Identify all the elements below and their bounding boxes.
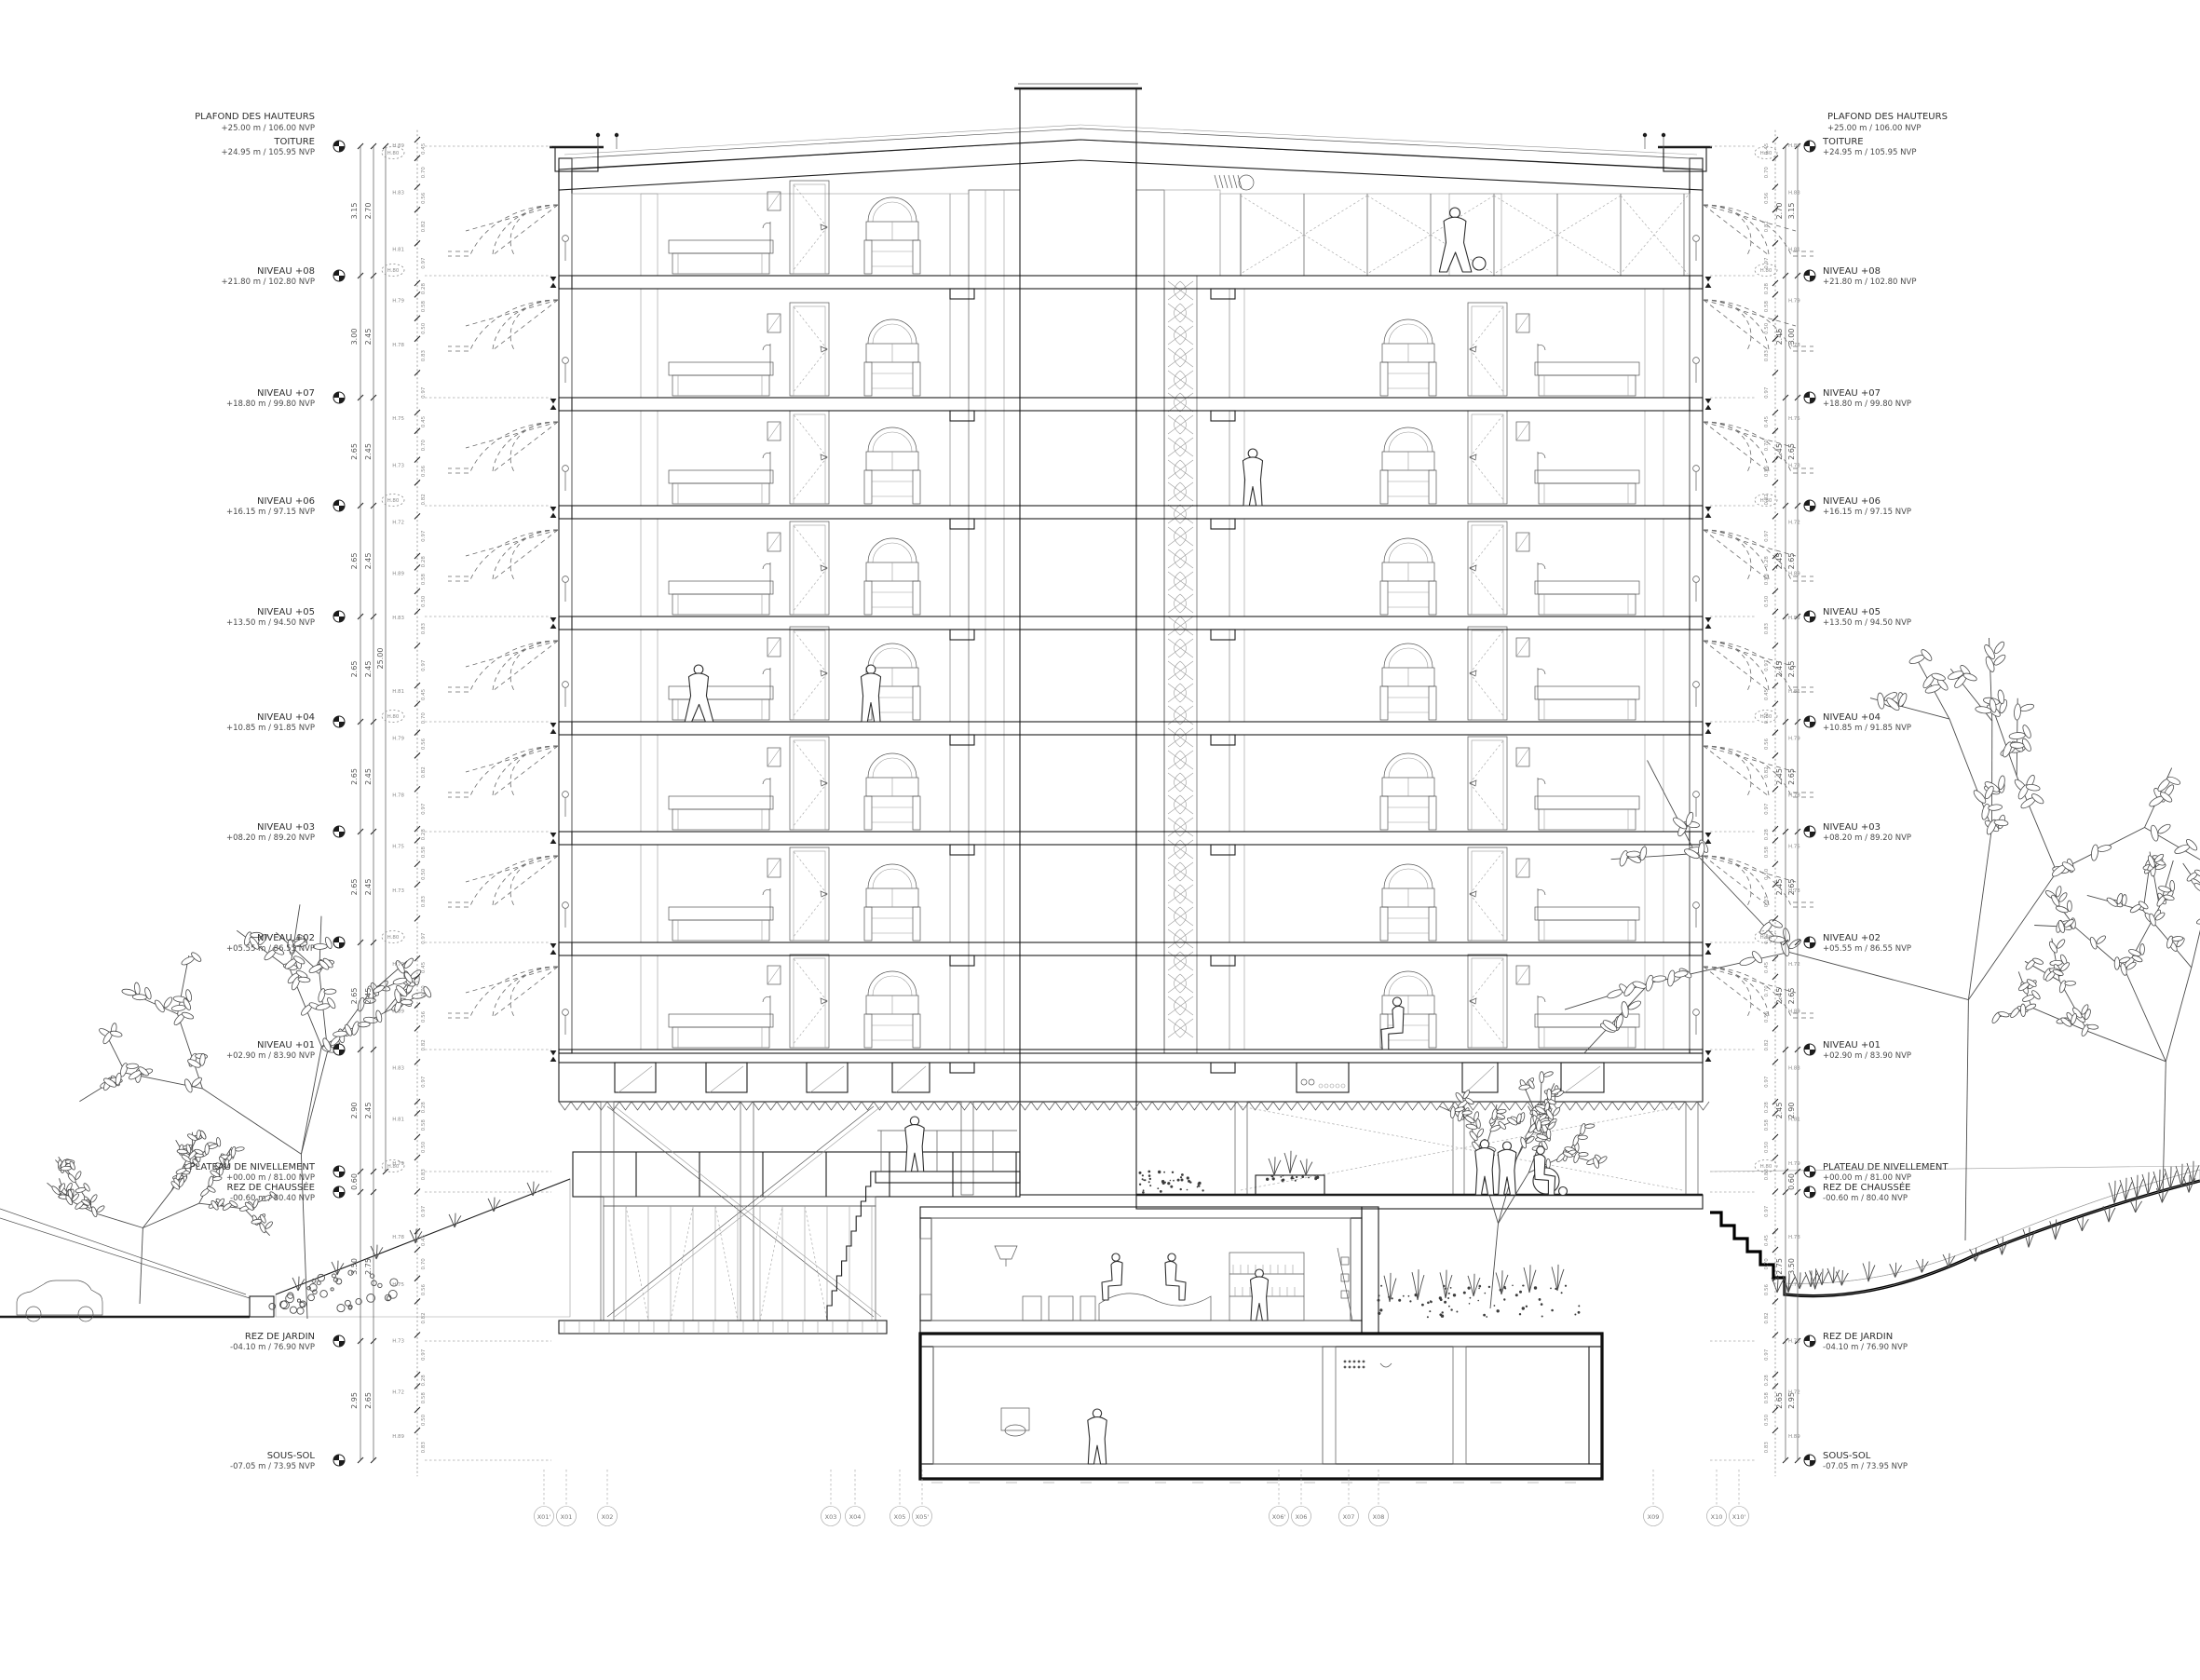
annotation-text: 0.82 [1764,221,1770,232]
annotation-text: TOITURE [273,137,315,147]
annotation-text: 0.28 [1764,1102,1770,1114]
annotation-text: +21.80 m / 102.80 NVP [222,278,315,287]
annotation-text: X06' [1272,1513,1286,1521]
annotation-text: H.83 [392,616,404,621]
annotation-text: 2.70 [1775,203,1784,220]
annotation-text: 0.82 [421,766,427,778]
annotation-text: 0.97 [1764,530,1770,542]
annotation-text: H.75 [1788,844,1800,849]
annotation-text: 0.58 [421,573,427,585]
annotation-text: NIVEAU +08 [257,266,315,277]
annotation-text: H.79 [392,737,404,742]
annotation-text: 2.65 [364,1392,373,1409]
annotation-text: 0.82 [1764,1039,1770,1050]
annotation-text: H.80 [387,498,400,504]
annotation-text: 3.15 [350,203,359,220]
person-figure [910,1117,918,1125]
annotation-text: 2.45 [1775,768,1784,785]
annotation-text: 0.83 [421,349,427,361]
annotation-text: H.75 [392,416,404,422]
annotation-text: NIVEAU +01 [1823,1040,1881,1050]
annotation-text: NIVEAU +03 [1823,822,1881,833]
person-figure [1112,1253,1120,1261]
annotation-text: H.81 [392,689,404,695]
annotation-text: 0.83 [1764,896,1770,908]
annotation-text: H.75 [1788,416,1800,422]
annotation-text: 0.70 [1764,985,1770,997]
annotation-text: 2.45 [1775,988,1784,1005]
annotation-text: 0.82 [421,1312,427,1323]
annotation-text: 0.82 [421,494,427,505]
annotation-text: 0.58 [421,300,427,312]
basement [920,1334,1602,1483]
annotation-text: 0.50 [421,1141,427,1153]
annotation-text: -07.05 m / 73.95 NVP [1823,1462,1908,1471]
annotation-text: 2.65 [1775,1392,1784,1409]
annotation-text: 3.50 [350,1258,359,1275]
annotation-text: H.72 [392,962,404,968]
annotation-text: PLAFOND DES HAUTEURS [1827,112,1948,122]
annotation-text: +02.90 m / 83.90 NVP [226,1051,315,1061]
annotation-text: H.72 [392,1389,404,1395]
annotation-text: H.73 [1788,464,1800,469]
person-figure [866,665,876,674]
annotation-text: 0.97 [421,659,427,671]
annotation-text: 0.45 [1764,1234,1770,1246]
annotation-text: 0.50 [1764,1141,1770,1153]
annotation-text: REZ DE JARDIN [1823,1332,1893,1342]
annotation-text: SOUS-SOL [1823,1451,1871,1461]
annotation-text: H.80 [387,935,400,941]
annotation-text: H.73 [392,1338,404,1344]
annotation-text: NIVEAU +06 [257,496,315,507]
annotation-text: 0.70 [1764,1258,1770,1270]
annotation-text: 0.58 [1764,1392,1770,1404]
annotation-text: REZ DE CHAUSSÉE [1823,1181,1911,1193]
annotation-text: 0.45 [421,142,427,155]
annotation-text: 0.28 [1764,283,1770,295]
annotation-text: NIVEAU +03 [257,822,315,833]
annotation-text: H.73 [1788,1338,1800,1344]
annotation-text: +10.85 m / 91.85 NVP [1823,724,1911,733]
annotation-text: 2.65 [350,988,359,1005]
annotation-text: 0.82 [1764,1312,1770,1323]
annotation-text: X03 [825,1513,837,1521]
annotation-text: NIVEAU +02 [257,933,315,943]
tree [1439,1071,1608,1308]
bedroom-left [572,181,969,276]
annotation-text: 2.65 [1787,661,1796,678]
annotation-text: 0.56 [1764,192,1770,204]
annotation-text: 0.70 [421,985,427,997]
annotation-text: 2.45 [364,661,373,678]
bedroom-right [1229,411,1690,506]
annotation-text: 0.83 [421,1169,427,1181]
annotation-text: X10 [1711,1513,1723,1521]
entrance-landing [827,1131,1020,1321]
annotation-text: 2.45 [1775,1103,1784,1119]
annotation-text: PLATEAU DE NIVELLEMENT [1823,1162,1949,1172]
annotation-text: 0.97 [421,530,427,542]
annotation-text: 0.56 [421,738,427,750]
annotation-text: X01' [537,1513,551,1521]
person-figure [1168,1253,1175,1261]
annotation-text: 2.75 [364,1258,373,1275]
annotation-text: 0.70 [1764,167,1770,179]
annotation-text: 2.65 [350,661,359,678]
annotation-text: 0.28 [1764,1375,1770,1387]
annotation-text: H.79 [392,298,404,304]
annotation-text: 0.97 [1764,1205,1770,1217]
annotation-text: 2.65 [1787,553,1796,570]
annotation-text: H.89 [1788,1009,1800,1015]
garden-level-lounge [920,1207,1362,1334]
annotation-text: H.73 [1788,888,1800,894]
person-figure [1248,449,1257,458]
annotation-text: 0.58 [421,1119,427,1131]
annotation-text: +18.80 m / 99.80 NVP [1823,400,1911,409]
annotation-text: H.78 [392,1235,404,1240]
annotation-text: 2.45 [364,768,373,785]
annotation-text: 2.45 [364,988,373,1005]
annotation-text: 0.45 [1764,688,1770,700]
annotation-text: 2.95 [350,1392,359,1409]
bedroom-left [572,845,969,942]
annotation-text: H.78 [1788,793,1800,798]
annotation-text: PLAFOND DES HAUTEURS [195,112,315,122]
annotation-text: +05.55 m / 86.55 NVP [226,944,315,954]
annotation-text: 0.58 [1764,300,1770,312]
annotation-text: H.89 [392,1434,404,1440]
tree [1990,852,2200,1198]
annotation-text: NIVEAU +05 [257,607,315,617]
annotation-text: +00.00 m / 81.00 NVP [226,1173,315,1183]
architectural-section-drawing: PLAFOND DES HAUTEURS+25.00 m / 106.00 NV… [0,0,2200,1680]
tree [79,904,432,1319]
annotation-text: 0.28 [1764,556,1770,568]
annotation-text: -04.10 m / 76.90 NVP [1823,1343,1908,1352]
annotation-text: 0.83 [421,1442,427,1454]
annotation-text: NIVEAU +04 [1823,712,1881,723]
annotation-text: H.72 [1788,962,1800,968]
annotation-text: H.79 [392,1161,404,1167]
annotation-text: 0.56 [421,465,427,477]
annotation-text: X08 [1373,1513,1385,1521]
annotation-text: 0.56 [1764,738,1770,750]
annotation-text: X07 [1343,1513,1355,1521]
annotation-text: 2.70 [364,203,373,220]
annotation-text: 0.97 [421,1348,427,1361]
annotation-text: +25.00 m / 106.00 NVP [1827,124,1921,133]
annotation-text: 2.65 [350,768,359,785]
annotation-text: 0.28 [421,556,427,568]
annotation-text: 0.28 [421,1102,427,1114]
annotation-text: H.73 [392,888,404,894]
annotation-text: H.89 [1788,143,1800,149]
annotation-text: NIVEAU +06 [1823,496,1881,507]
annotation-text: 0.45 [1764,961,1770,973]
annotation-text: -00.60 m / 80.40 NVP [230,1194,315,1203]
terrace [1136,1102,1703,1209]
annotation-text: 0.58 [1764,573,1770,585]
annotation-text: 2.65 [1787,768,1796,785]
annotation-text: NIVEAU +07 [1823,388,1881,399]
annotation-text: X02 [602,1513,614,1521]
annotation-text: 0.97 [1764,932,1770,944]
annotation-text: 0.56 [1764,1283,1770,1295]
annotation-text: H.81 [1788,689,1800,695]
bedroom-right [1229,735,1690,832]
annotation-text: 0.97 [421,932,427,944]
annotation-text: X05 [894,1513,906,1521]
bedroom-left [572,519,969,616]
annotation-text: 0.83 [1764,349,1770,361]
annotation-text: H.80 [387,268,400,274]
annotation-text: H.81 [1788,247,1800,252]
person-figure [1450,208,1460,218]
annotation-text: 0.50 [421,868,427,880]
annotation-text: +24.95 m / 105.95 NVP [1823,148,1916,157]
annotation-text: NIVEAU +07 [257,388,315,399]
annotation-text: 2.45 [1775,879,1784,896]
person-figure [1502,1142,1511,1150]
annotation-text: H.78 [1788,343,1800,348]
scene-content: PLAFOND DES HAUTEURS+25.00 m / 106.00 NV… [0,84,2200,1526]
bedroom-left [572,289,969,398]
annotation-text: 0.50 [1764,322,1770,334]
annotation-text: 2.45 [364,879,373,896]
annotation-text: 0.70 [421,712,427,725]
annotation-text: 0.28 [421,829,427,841]
annotation-text: 0.45 [421,688,427,700]
bedroom-left [572,955,969,1050]
annotation-text: 3.50 [1787,1258,1796,1275]
annotation-text: NIVEAU +04 [257,712,315,723]
shrub [269,1293,306,1314]
annotation-text: 0.45 [421,1234,427,1246]
annotation-text: +21.80 m / 102.80 NVP [1823,278,1916,287]
annotation-text: 0.60 [350,1173,359,1190]
tree [48,1130,278,1304]
annotation-text: 2.65 [350,443,359,460]
annotation-text: X01 [561,1513,573,1521]
annotation-text: 0.97 [1764,1076,1770,1088]
soil-speckle [1378,1285,1581,1319]
annotation-text: H.79 [1788,737,1800,742]
annotation-text: NIVEAU +05 [1823,607,1881,617]
annotation-text: NIVEAU +01 [257,1040,315,1050]
annotation-text: H.79 [1788,298,1800,304]
annotation-text: +10.85 m / 91.85 NVP [226,724,315,733]
annotation-text: TOITURE [1822,137,1864,147]
annotation-text: SOUS-SOL [267,1451,316,1461]
annotation-text: 0.70 [1764,440,1770,452]
annotation-text: 0.56 [1764,465,1770,477]
annotation-text: 2.65 [350,879,359,896]
annotation-text: 0.56 [421,1010,427,1023]
annotation-text: 2.45 [1775,443,1784,460]
bedroom-left [572,735,969,832]
annotation-text: -07.05 m / 73.95 NVP [230,1462,315,1471]
annotation-text: 0.58 [1764,847,1770,859]
building-section [448,84,1813,1483]
annotation-text: 0.70 [421,1258,427,1270]
annotation-text: 0.50 [1764,1414,1770,1426]
annotation-text: 0.70 [421,440,427,452]
annotation-text: X05' [916,1513,930,1521]
annotation-text: 2.75 [1775,1258,1784,1275]
annotation-text: 0.45 [421,961,427,973]
annotation-text: H.79 [1788,1161,1800,1167]
annotation-text: 0.97 [1764,659,1770,671]
annotation-text: H.72 [1788,520,1800,525]
annotation-text: X06 [1296,1513,1308,1521]
annotation-text: H.83 [1788,616,1800,621]
person-figure [694,665,703,674]
annotation-text: 0.56 [421,1283,427,1295]
annotation-text: 0.97 [1764,257,1770,269]
annotation-text: +02.90 m / 83.90 NVP [1823,1051,1911,1061]
annotation-text: 0.50 [421,322,427,334]
dimension-annotations: PLAFOND DES HAUTEURS+25.00 m / 106.00 NV… [190,112,1949,1526]
annotation-text: +16.15 m / 97.15 NVP [226,508,315,517]
annotation-text: H.89 [392,143,404,149]
annotation-text: H.89 [1788,571,1800,576]
annotation-text: H.83 [392,191,404,196]
annotation-text: 0.97 [421,803,427,815]
annotation-text: 0.97 [421,257,427,269]
annotation-text: H.78 [392,793,404,798]
annotation-text: 2.45 [364,443,373,460]
annotation-text: H.78 [392,343,404,348]
annotation-text: +08.20 m / 89.20 NVP [226,833,315,843]
annotation-text: 2.65 [350,553,359,570]
annotation-text: 0.58 [421,847,427,859]
annotation-text: H.81 [392,247,404,252]
annotation-text: 0.97 [421,1205,427,1217]
bedroom-left [572,411,969,506]
annotation-text: 0.28 [1764,829,1770,841]
technical-floor-band [559,1053,1709,1110]
sunken-garden [1362,1207,1580,1334]
annotation-text: 25.00 [376,648,385,670]
annotation-text: +05.55 m / 86.55 NVP [1823,944,1911,954]
annotation-text: 0.50 [421,1414,427,1426]
annotation-text: 0.70 [1764,712,1770,725]
annotation-text: REZ DE CHAUSSÉE [227,1181,316,1193]
annotation-text: 2.65 [1787,988,1796,1005]
annotation-text: 0.97 [1764,803,1770,815]
annotation-text: H.75 [392,1282,404,1288]
annotation-text: H.81 [392,1117,404,1122]
annotation-text: -00.60 m / 80.40 NVP [1823,1194,1908,1203]
annotation-text: H.75 [1788,1282,1800,1288]
annotation-text: NIVEAU +02 [1823,933,1881,943]
annotation-text: 0.50 [421,595,427,607]
annotation-text: REZ DE JARDIN [245,1332,315,1342]
annotation-text: 0.82 [421,1039,427,1050]
annotation-text: NIVEAU +08 [1823,266,1881,277]
annotation-text: X09 [1648,1513,1660,1521]
annotation-text: 0.58 [1764,1119,1770,1131]
annotation-text: H.83 [392,1065,404,1071]
annotation-text: 0.83 [1764,623,1770,635]
annotation-text: H.81 [1788,1117,1800,1122]
annotation-text: +16.15 m / 97.15 NVP [1823,508,1911,517]
annotation-text: H.72 [1788,1389,1800,1395]
annotation-text: +18.80 m / 99.80 NVP [226,400,315,409]
annotation-text: 2.45 [1775,329,1784,345]
annotation-text: +13.50 m / 94.50 NVP [1823,618,1911,628]
annotation-text: 2.45 [1775,661,1784,678]
annotation-text: +25.00 m / 106.00 NVP [222,124,315,133]
annotation-text: 2.90 [350,1103,359,1119]
person-figure [1480,1140,1488,1148]
annotation-text: 0.58 [421,1392,427,1404]
annotation-text: H.83 [1788,191,1800,196]
annotation-text: 0.82 [1764,494,1770,505]
annotation-text: H.89 [392,571,404,576]
annotation-text: 0.45 [1764,142,1770,155]
annotation-text: 0.97 [1764,1348,1770,1361]
annotation-text: H.72 [392,520,404,525]
annotation-text: H.89 [1788,1434,1800,1440]
annotation-text: 0.83 [421,896,427,908]
annotation-text: 0.97 [421,386,427,399]
annotation-text: 0.82 [1764,766,1770,778]
annotation-text: H.89 [392,1009,404,1015]
annotation-text: 0.97 [421,1076,427,1088]
annotation-text: +00.00 m / 81.00 NVP [1823,1173,1911,1183]
drawing-sheet: PLAFOND DES HAUTEURS+25.00 m / 106.00 NV… [0,0,2200,1680]
annotation-text: -04.10 m / 76.90 NVP [230,1343,315,1352]
annotation-text: 0.56 [1764,1010,1770,1023]
annotation-text: X10' [1732,1513,1746,1521]
bedroom-left [572,627,969,722]
bedroom-right [1229,289,1690,398]
person-figure [1093,1409,1101,1417]
annotation-text: 0.50 [1764,595,1770,607]
annotation-text: 0.28 [421,1375,427,1387]
annotation-text: 0.70 [421,167,427,179]
annotation-text: 0.56 [421,192,427,204]
bedroom-right [1229,519,1690,616]
annotation-text: 0.50 [1764,868,1770,880]
annotation-text: 2.65 [1787,443,1796,460]
annotation-text: 0.83 [421,623,427,635]
bedroom-right [1229,955,1690,1050]
annotation-text: H.83 [1788,1065,1800,1071]
annotation-text: H.75 [392,844,404,849]
annotation-text: 0.82 [421,221,427,232]
annotation-text: 0.83 [1764,1169,1770,1181]
annotation-text: H.80 [387,714,400,720]
annotation-text: 2.45 [364,329,373,345]
soil-speckle [1139,1171,1204,1194]
annotation-text: X04 [849,1513,862,1521]
annotation-text: H.78 [1788,1235,1800,1240]
annotation-text: 0.97 [1764,386,1770,399]
annotation-text: 0.83 [1764,1442,1770,1454]
annotation-text: +08.20 m / 89.20 NVP [1823,833,1911,843]
annotation-text: 2.45 [364,553,373,570]
annotation-text: 0.28 [421,283,427,295]
person-figure [1537,1146,1545,1155]
annotation-text: 0.60 [1787,1173,1796,1190]
annotation-text: H.73 [392,464,404,469]
people [685,208,1567,1464]
person-figure [1392,997,1401,1006]
